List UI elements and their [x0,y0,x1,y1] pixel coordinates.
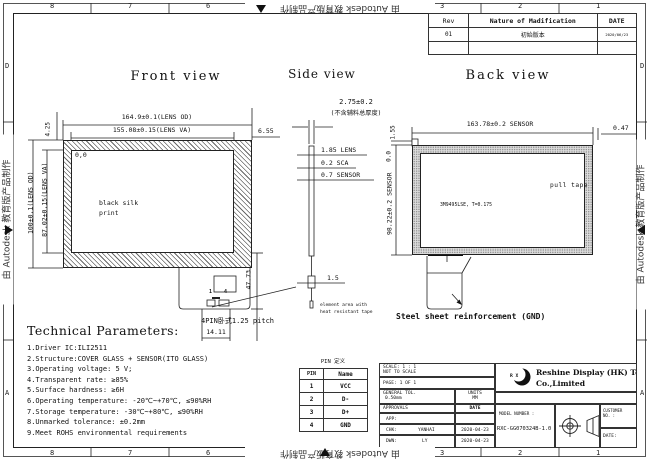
black-silk-label-1: black silk [99,200,138,207]
dim-lens-od-width: 164.9±0.1(LENS OD) [77,114,237,121]
zone-col-label: 3 [440,2,444,10]
company-name-line1: Reshine Display (HK) Technology [536,368,637,377]
zone-col-label: 2 [518,2,522,10]
centering-mark-left [5,225,13,235]
customer-date-cell: DATE: [600,428,637,448]
rev-number-cell: 01 [429,28,469,42]
approvals-date-cell: DATE [455,404,495,413]
front-origin-label: 0,0 [75,152,87,159]
logo-text: R X [510,374,518,379]
zone-col-label: 7 [128,2,132,10]
pin-name: VCC [324,380,368,393]
black-silk-label-2: print [99,210,119,217]
dim-lens-od-height: 100±0.1(LENS OD) [27,148,34,258]
dwn-date-cell: 2020-04-23 [455,435,495,448]
dwn-name: LY [422,439,428,444]
tech-param-item: 8.Unmarked tolerance: ±0.2mm [27,417,211,428]
approvals-date-header: DATE [456,406,494,411]
pin-name: GND [324,419,368,432]
steel-sheet-label: Steel sheet reinforcement (GND) [396,312,545,321]
tech-param-item: 1.Driver IC:ILI2511 [27,343,211,354]
back-origin-label: 0.0 [387,141,394,171]
zone-col-label: 3 [440,449,444,457]
pin-number: 4 [300,419,324,432]
rev-date-cell: 2020/06/23 [597,28,637,42]
layer-lens-label: 1.85 LENS [321,147,356,154]
nature-col-header: Nature of Madification [469,14,597,28]
centering-mark-top [256,5,266,13]
zone-row-label: A [5,389,9,397]
connector-label: 4PIN卧式1.25 pitch [201,317,274,325]
front-view-title: Front view [106,70,246,85]
zone-col-label: 8 [50,449,54,457]
dwn-label: DWN: [386,439,397,444]
chk-date-cell: 2020-04-23 [455,424,495,435]
zone-col-label: 2 [518,449,522,457]
tape-note-line1: element area with [320,303,367,308]
customer-no-cell: CUSTOMER NO. : [600,404,637,428]
not-to-scale-label: NOT TO SCALE [383,370,494,375]
zone-col-label: 8 [50,2,54,10]
general-tol-cell: GENERAL TOL. 0.50mm [379,389,455,404]
zone-row-label: D [640,62,644,70]
side-view-title: Side view [272,68,372,82]
zone-row-label: A [640,389,644,397]
company-name-line2: Co.,Limited [536,379,585,388]
dim-top-right-offset: 6.55 [258,128,274,135]
scale-cell: SCALE: 1 : 1 NOT TO SCALE [379,363,495,377]
pin-number: 1 [300,380,324,393]
autodesk-watermark-top: 由 Autodesk 教育版产品制作 [245,2,435,13]
approvals-cell: APPROVALS [379,404,455,413]
chk-label: CHK: [386,428,397,433]
dim-lens-va-height: 87.02±0.15(LENS VA) [41,145,48,255]
pin-table-title: PIN 定义 [299,359,367,365]
tape-note-line2: heat resistant tape [320,310,373,315]
page-cell: PAGE: 1 OF 1 [379,377,495,389]
tech-params-list: 1.Driver IC:ILI2511 2.Structure:COVER GL… [27,343,211,438]
tech-params-title: Technical Parameters: [27,324,179,338]
dim-total-thickness: 2.75±0.2 [316,98,396,106]
title-block: SCALE: 1 : 1 NOT TO SCALE PAGE: 1 OF 1 G… [379,363,637,448]
app-date-cell [455,413,495,424]
autodesk-watermark-bottom: 由 Autodesk 教育版产品制作 [245,447,435,458]
layer-sca-label: 0.2 SCA [321,160,348,167]
back-view-panel [412,145,593,255]
dim-lens-va-width: 155.08±0.15(LENS VA) [72,127,232,134]
zone-col-label: 6 [206,2,210,10]
dim-right-offset: 0.47 [613,125,629,132]
zone-col-label: 1 [596,449,600,457]
total-thickness-note: (不含辅料总厚度) [306,110,406,117]
autodesk-watermark-left: 由 Autodesk 教育版产品制作 [3,135,14,305]
customer-no-label2: NO. : [603,413,636,418]
app-cell: APP: [379,413,455,424]
rev-desc-cell: 初始版本 [469,28,597,42]
approvals-label: APPROVALS [383,406,454,411]
tech-param-item: 3.Operating voltage: 5 V; [27,364,211,375]
centering-mark-bottom [320,448,330,456]
tech-param-item: 5.Surface hardness: ≥6H [27,385,211,396]
dim-top-left-offset: 4.25 [46,110,53,136]
chk-cell: CHK: YANHAI [379,424,455,435]
general-tol-value: 0.50mm [385,396,454,401]
zone-col-label: 6 [206,449,210,457]
zone-col-label: 1 [596,2,600,10]
pin-col-header: PIN [300,369,324,380]
chk-date: 2020-04-23 [456,428,494,433]
tech-param-item: 4.Transparent rate: ≥85% [27,375,211,386]
dim-tail-length: 47.73 [245,255,252,305]
pin-name: D+ [324,406,368,419]
zone-col-label: 7 [128,449,132,457]
dim-connector-width: 14.11 [198,329,234,336]
front-view-panel [63,140,252,268]
dim-fpc-thickness: 1.5 [327,275,339,282]
front-view-active-area [71,150,234,253]
tech-param-item: 9.Meet ROHS environmental requirements [27,428,211,439]
pin1-marker: 1 [209,290,212,296]
tech-param-item: 2.Structure:COVER GLASS + SENSOR(ITO GLA… [27,354,211,365]
back-view-title: Back view [448,69,568,84]
pin4-marker: 4 [224,290,227,296]
rev-col-header: Rev [429,14,469,28]
chk-name: YANHAI [418,428,435,433]
units-value: MM [456,396,494,401]
model-number-cell: MODEL NUMBER : RXC-GG070324B-1.0 [495,404,555,448]
pin-number: 3 [300,406,324,419]
adhesive-tape-label: 3M9495LSE, T=0.175 [440,203,492,209]
units-cell: UNITS MM [455,389,495,404]
date-col-header: DATE [597,14,637,28]
model-number-label: MODEL NUMBER : [499,411,554,416]
spacer-cell [495,392,637,404]
revision-table: Rev Nature of Madification DATE 01 初始版本 … [428,13,637,55]
centering-mark-right [637,225,645,235]
engineering-drawing-sheet: Front view Side view Back view 164.9±0.1… [0,0,650,461]
model-number-value: RXC-GG070324B-1.0 [497,426,554,432]
dwn-date: 2020-04-23 [456,439,494,444]
layer-sensor-label: 0.7 SENSOR [321,172,360,179]
dim-sensor-width: 163.78±0.2 SENSOR [420,121,580,128]
tech-param-item: 6.Operating temperature: -20℃~+70℃, ≤90%… [27,396,211,407]
name-col-header: Name [324,369,368,380]
back-view-inner-area [420,153,585,248]
customer-date-label: DATE: [603,434,636,439]
pin-number: 2 [300,393,324,406]
pull-tape-label: pull tape [550,182,588,189]
pin-definition-table: PIN Name 1VCC 2D- 3D+ 4GND [299,368,368,432]
tech-param-item: 7.Storage temperature: -30℃~+80℃, ≤90%RH [27,407,211,418]
zone-row-label: D [5,62,9,70]
page-label: PAGE: 1 OF 1 [383,381,494,386]
company-cell: R X Reshine Display (HK) Technology Co.,… [495,363,637,392]
app-label: APP: [386,417,454,422]
projection-symbol-cell [555,404,600,448]
pin-name: D- [324,393,368,406]
